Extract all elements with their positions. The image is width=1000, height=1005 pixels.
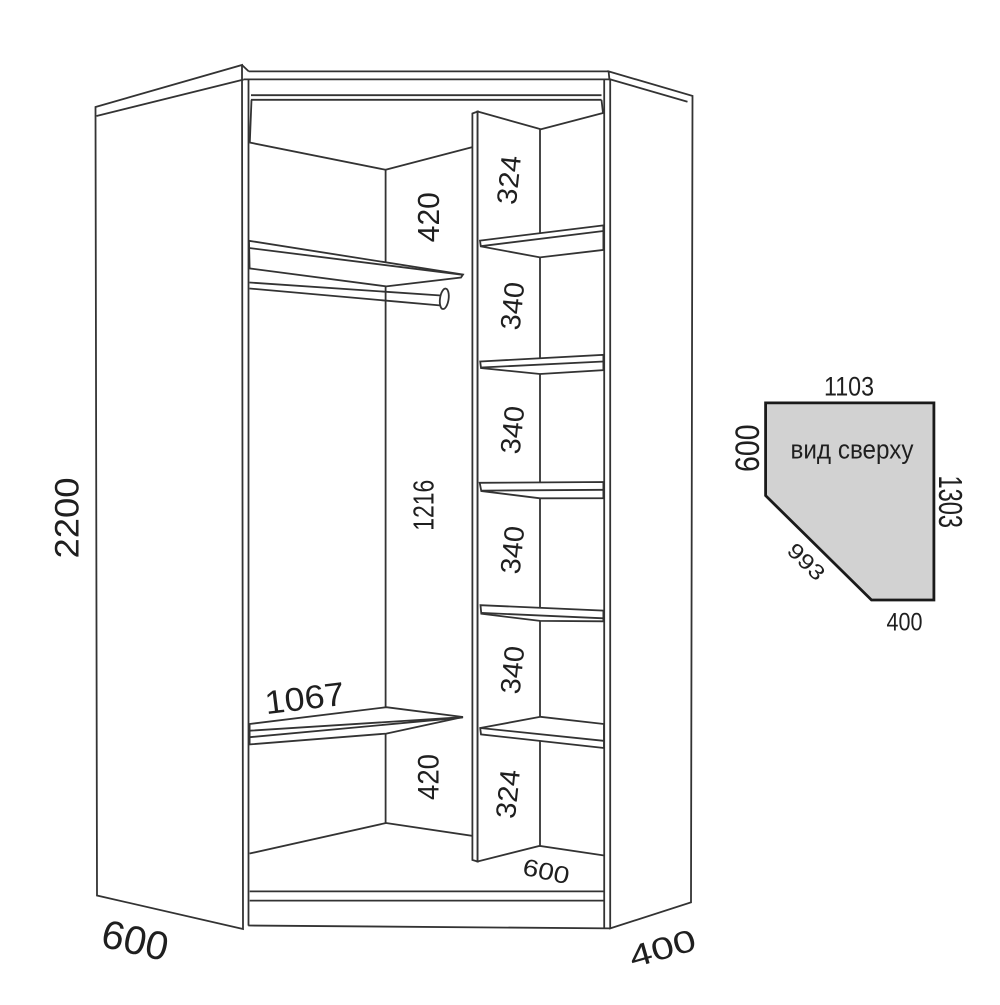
svg-text:1216: 1216 [409,480,441,531]
svg-text:1103: 1103 [824,372,874,402]
svg-text:340: 340 [495,405,531,456]
svg-text:420: 420 [411,192,446,242]
svg-text:2200: 2200 [49,478,87,559]
svg-text:600: 600 [729,424,767,472]
svg-text:400: 400 [887,609,923,637]
svg-text:340: 340 [495,645,531,696]
svg-text:340: 340 [495,525,531,576]
svg-text:420: 420 [413,754,446,800]
svg-text:340: 340 [495,281,531,332]
svg-text:вид сверху: вид сверху [791,435,914,465]
svg-text:324: 324 [490,768,526,820]
svg-text:324: 324 [491,154,527,206]
svg-text:1303: 1303 [932,475,969,528]
